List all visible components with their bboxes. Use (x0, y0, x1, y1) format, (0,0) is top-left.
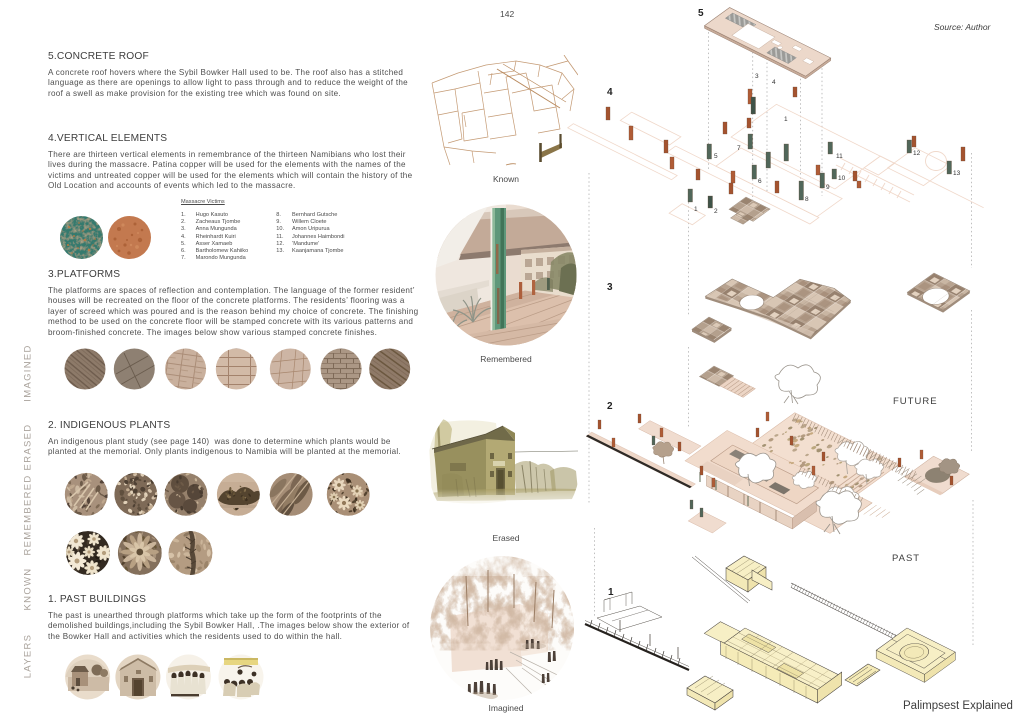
svg-text:6: 6 (758, 178, 762, 185)
svg-text:9: 9 (826, 184, 830, 191)
svg-text:11: 11 (836, 153, 843, 160)
svg-text:1: 1 (784, 116, 788, 123)
svg-text:7: 7 (737, 145, 741, 152)
svg-text:10: 10 (838, 175, 846, 182)
svg-text:4: 4 (772, 79, 776, 86)
svg-text:12: 12 (913, 150, 921, 157)
svg-text:2: 2 (714, 208, 718, 215)
svg-text:3: 3 (755, 73, 759, 80)
svg-text:1: 1 (694, 206, 698, 213)
svg-text:8: 8 (805, 196, 809, 203)
svg-text:13: 13 (953, 170, 961, 177)
svg-text:5: 5 (714, 153, 718, 160)
